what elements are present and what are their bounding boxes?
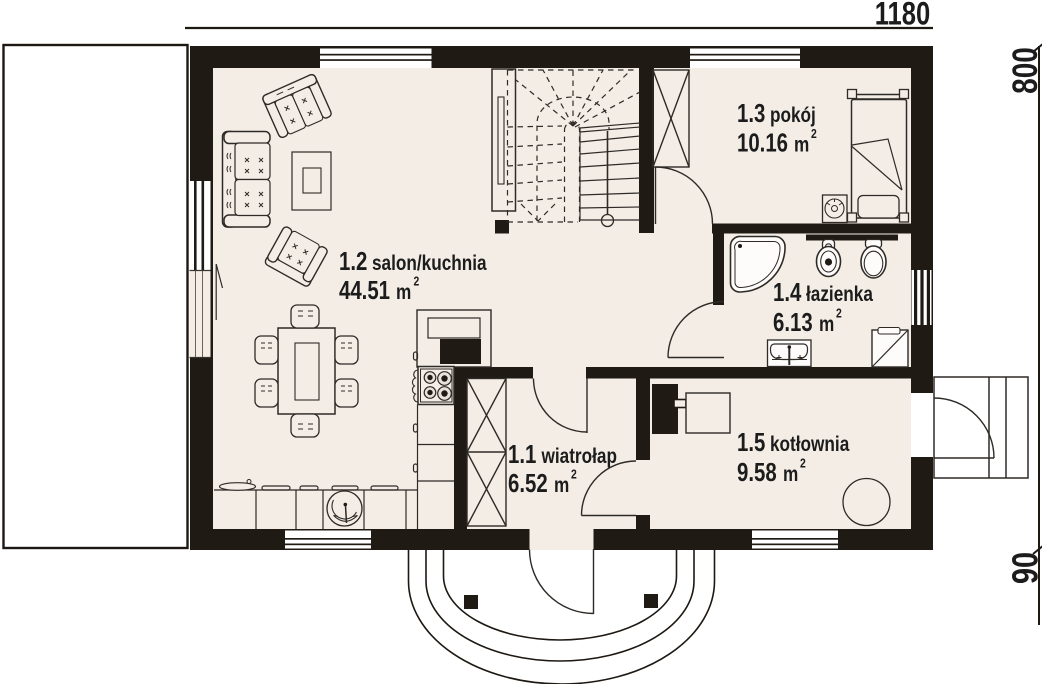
svg-text:90: 90: [1004, 552, 1042, 584]
svg-text:1.5: 1.5: [737, 428, 765, 457]
svg-text:kotłownia: kotłownia: [770, 432, 849, 456]
svg-text:1.3: 1.3: [737, 99, 765, 128]
svg-text:2: 2: [800, 456, 806, 470]
svg-text:1.4: 1.4: [773, 278, 801, 307]
svg-text:1.2: 1.2: [339, 247, 367, 276]
svg-text:800: 800: [1005, 47, 1042, 94]
svg-text:6.52: 6.52: [508, 469, 548, 498]
svg-text:wiatrołap: wiatrołap: [541, 444, 617, 468]
svg-text:łazienka: łazienka: [806, 282, 873, 306]
svg-text:10.16: 10.16: [737, 128, 788, 157]
svg-text:m: m: [794, 133, 809, 157]
svg-text:salon/kuchnia: salon/kuchnia: [372, 251, 487, 275]
svg-text:2: 2: [811, 127, 817, 141]
svg-text:6.13: 6.13: [773, 308, 813, 337]
svg-text:m: m: [819, 312, 834, 336]
svg-text:9.58: 9.58: [737, 458, 777, 487]
svg-text:2: 2: [836, 306, 842, 320]
svg-text:m: m: [396, 280, 411, 304]
svg-text:2: 2: [414, 274, 420, 288]
svg-text:m: m: [783, 462, 798, 486]
svg-text:2: 2: [571, 467, 577, 481]
svg-text:44.51: 44.51: [339, 276, 390, 305]
svg-text:1180: 1180: [875, 0, 931, 32]
svg-text:1.1: 1.1: [508, 440, 536, 469]
svg-text:m: m: [554, 473, 569, 497]
svg-text:pokój: pokój: [770, 103, 816, 127]
